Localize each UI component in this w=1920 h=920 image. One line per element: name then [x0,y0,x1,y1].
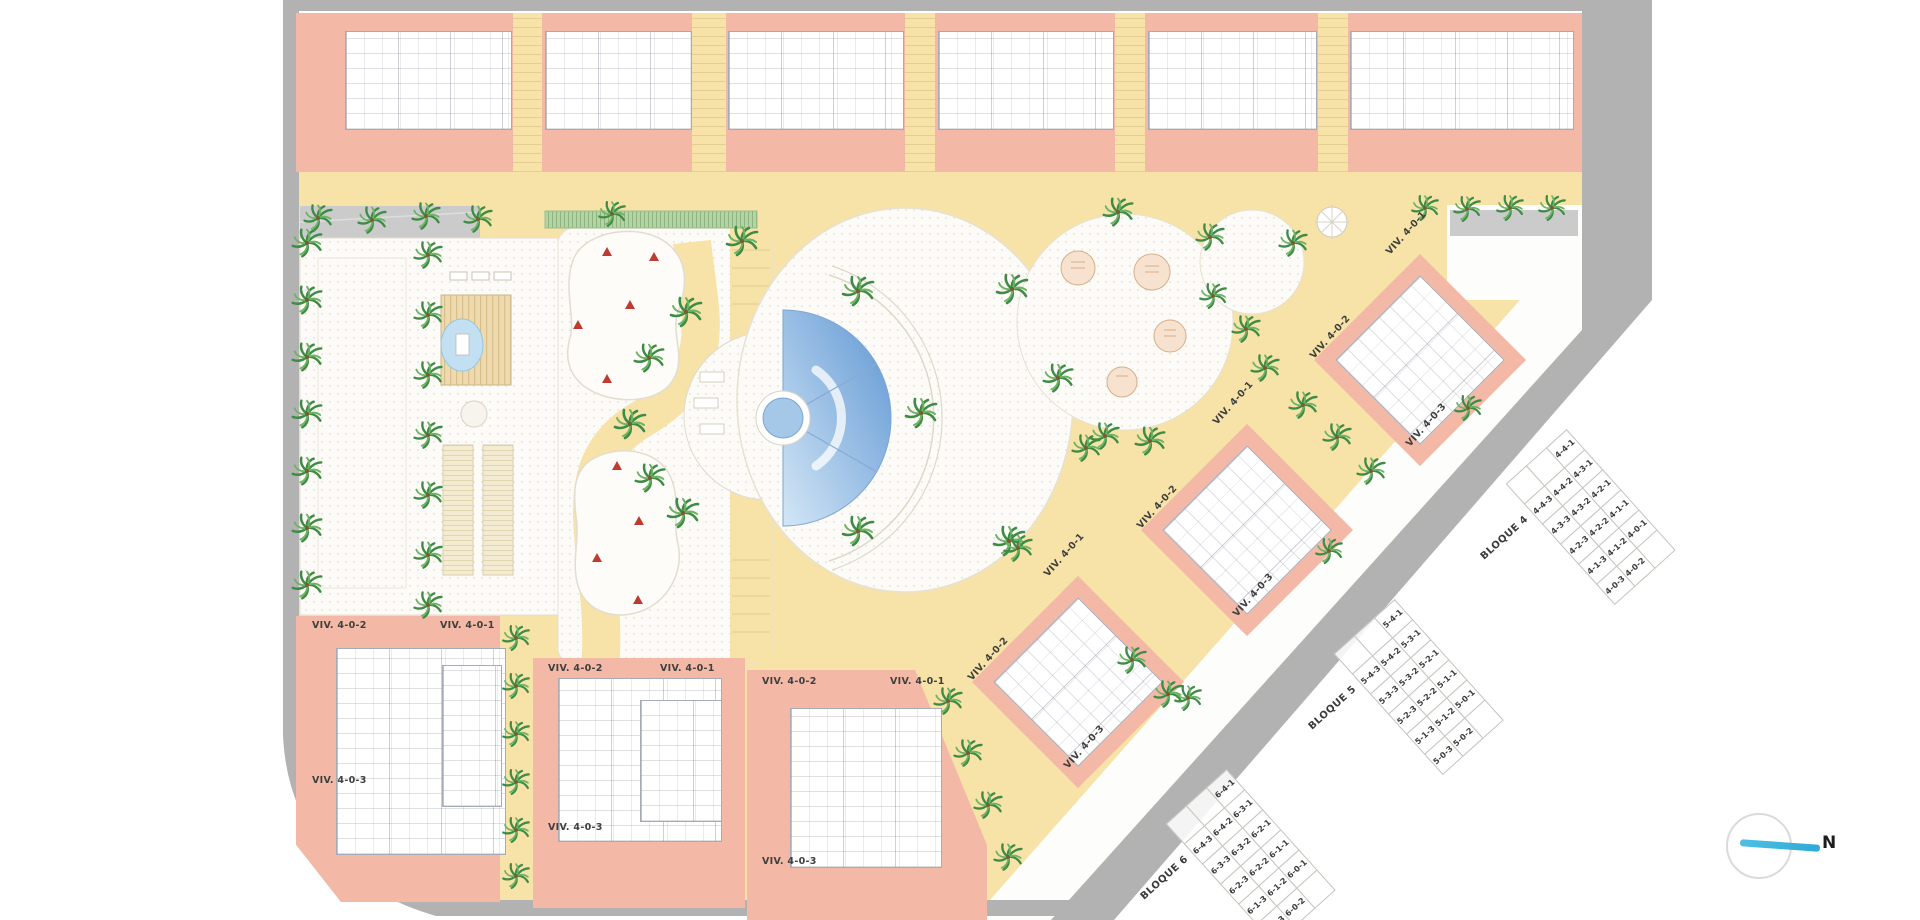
bloque-4-title: BLOQUE 4 [1479,514,1531,562]
townhouse-cluster [545,31,692,130]
palm-tree-icon [1290,392,1317,417]
building-unit-label: VIV. 4-0-2 [762,676,817,687]
court-1 [443,445,473,575]
games-plaza-small [1200,210,1304,314]
site-plan: VIV. 4-0-2 VIV. 4-0-1 VIV. 4-0-3 VIV. 4-… [0,0,1920,920]
building-unit-label: VIV. 4-0-3 [548,822,603,833]
palm-tree-icon [1358,458,1385,483]
path-gap [513,13,542,172]
play-zone-1 [568,231,685,399]
bloque-6-grid: 6-4-16-4-36-4-26-3-16-3-36-3-26-2-16-2-3… [1166,770,1335,920]
curved-path [592,242,701,668]
bloque-6-table: BLOQUE 6 6-4-16-4-36-4-26-3-16-3-36-3-26… [1166,770,1335,920]
townhouse-cluster [938,31,1114,130]
palm-tree-icon [995,844,1022,869]
bloque-5-title: BLOQUE 5 [1307,684,1359,732]
palm-tree-icon [1073,435,1100,460]
palm-tree-icon [1252,355,1279,380]
fountain-icon [1317,207,1347,237]
townhouse-cluster [345,31,512,130]
palm-tree-icon [293,344,322,371]
sun-loungers [450,272,511,280]
sidewalk-right [1450,210,1578,236]
lounger-terrace [684,332,768,500]
palm-tree-icon [503,626,529,650]
palm-tree-icon [1324,424,1351,449]
palm-tree-icon [615,410,645,438]
pergola [545,211,757,228]
building-unit-label: VIV. 4-0-1 [440,620,495,631]
path-gap [1115,13,1145,172]
deck [441,295,511,385]
townhouse-cluster [1350,31,1574,130]
palm-tree-icon [293,401,322,428]
garden-bed [318,258,406,588]
palm-tree-icon [1175,686,1201,710]
palm-tree-icon [415,542,442,567]
left-plaza [300,238,558,615]
building-unit-label: VIV. 4-0-2 [312,620,367,631]
game-tables [1061,251,1186,397]
palm-tree-icon [1539,196,1565,220]
palm-tree-icon [293,572,322,599]
palm-tree-icon [727,227,757,255]
palm-tree-icon [503,864,529,888]
play-equipment [573,247,659,604]
palm-tree-icon [1197,224,1224,249]
bloque-5-grid: 5-4-15-4-35-4-25-3-15-3-35-3-25-2-15-2-3… [1334,600,1503,775]
palm-tree-icon [413,203,440,228]
palm-tree-icon [997,275,1027,303]
palm-tree-icon [503,770,529,794]
jacuzzi-icon [756,391,810,445]
palm-tree-icon [293,230,322,257]
building-unit-label: VIV. 4-0-3 [762,856,817,867]
palm-tree-icon [843,517,873,545]
palm-tree-icon [1280,230,1307,255]
palm-tree-icon [359,207,386,232]
palm-tree-icon [635,345,664,372]
palm-tree-icon [975,792,1002,817]
palm-tree-icon [843,277,873,305]
stepped-path [730,228,772,664]
palm-tree-icon [293,458,322,485]
building-unit-label: VIV. 4-0-3 [312,775,367,786]
building-unit-label: VIV. 4-0-1 [1042,531,1087,579]
palm-tree-icon [465,206,492,231]
path-gap [1318,13,1348,172]
north-label: N [1822,833,1836,853]
bloque-5-table: BLOQUE 5 5-4-15-4-35-4-25-3-15-3-35-3-25… [1334,600,1503,775]
bloque-4-table: BLOQUE 4 4-4-14-4-34-4-24-3-14-3-34-3-24… [1506,430,1675,605]
pool [783,310,891,526]
play-zone-2 [575,451,680,615]
palm-tree-icon [293,287,322,314]
palm-tree-icon [1497,196,1523,220]
games-plaza-large [1017,214,1233,430]
palm-tree-icon [305,205,332,230]
building-unit-label: VIV. 4-0-1 [660,663,715,674]
palm-tree-icon [1092,423,1119,448]
building-unit-label: VIV. 4-0-1 [1211,379,1256,427]
palm-tree-icon [1104,199,1133,226]
palm-tree-icon [503,674,529,698]
palm-tree-icon [671,298,701,326]
palm-tree-icon [415,362,442,387]
building-unit-label: VIV. 4-0-2 [548,663,603,674]
palm-tree-icon [415,482,442,507]
palm-tree-icon [906,399,936,427]
palm-tree-icon [1454,197,1480,221]
pool-plaza [737,208,1073,592]
building-unit-label: VIV. 4-0-1 [1384,209,1429,257]
palm-tree-icon [599,202,625,226]
palm-tree-icon [1233,316,1260,341]
palm-tree-icon [1136,428,1165,455]
townhouse-cluster [728,31,904,130]
bloque-4-grid: 4-4-14-4-34-4-24-3-14-3-34-3-24-2-14-2-3… [1506,430,1675,605]
splash-pool [441,319,483,371]
building-unit-label: VIV. 4-0-1 [890,676,945,687]
townhouse-cluster [1148,31,1317,130]
palm-tree-icon [415,302,442,327]
palm-tree-icon [1200,284,1226,308]
palm-tree-icon [1005,535,1032,560]
road-top [285,0,1652,11]
court-2 [483,445,513,575]
path-gap [905,13,935,172]
path-gap [692,13,726,172]
palm-tree-icon [293,515,322,542]
palm-tree-icon [415,422,442,447]
round-planter [461,401,487,427]
palm-tree-icon [994,527,1024,555]
bloque-6-title: BLOQUE 6 [1139,854,1191,902]
palm-tree-icon [1044,365,1073,392]
palm-tree-icon [415,592,442,617]
palm-tree-icon [668,499,698,527]
playground-area [558,228,772,664]
palm-tree-icon [636,465,665,492]
north-indicator: N [1726,813,1846,883]
top-townhouse-strip [296,13,1582,172]
sidewalk-left [300,206,480,238]
palm-tree-icon [415,242,442,267]
palm-tree-icon [955,740,982,765]
palm-tree-icon [503,722,529,746]
palm-tree-icon [503,818,529,842]
